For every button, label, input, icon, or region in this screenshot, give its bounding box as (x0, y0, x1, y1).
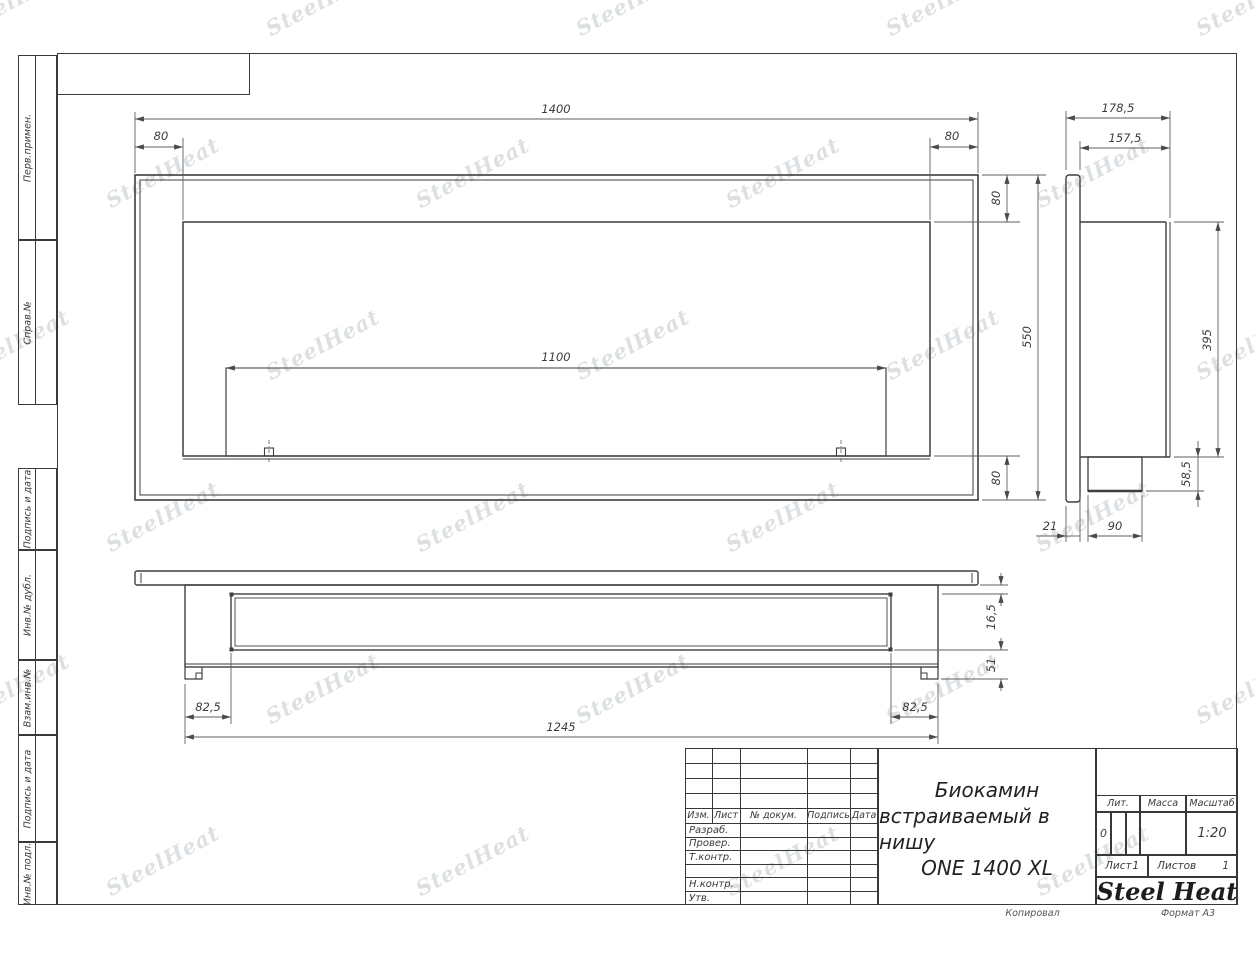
lit-label: Лит. (1096, 795, 1140, 812)
scale-label: Масштаб (1186, 795, 1238, 812)
sheet-cell: Лист 1 (1096, 855, 1148, 877)
row-developed: Разраб. (685, 823, 740, 837)
top-left-extra-box (57, 53, 250, 95)
drawing-sheet: SteelHeatSteelHeatSteelHeatSteelHeatStee… (0, 0, 1255, 970)
rev-col-list: Лист (712, 808, 740, 823)
scale-value-cell: 1:20 (1186, 812, 1238, 855)
sheets-label: Листов (1157, 860, 1196, 872)
lit-cell-2 (1111, 812, 1126, 855)
margin-label: Справ.№ (23, 301, 34, 344)
copied-label: Копировал (985, 908, 1080, 919)
sheets-cell: Листов 1 (1148, 855, 1238, 877)
margin-cell-sprav-no: Справ.№ (18, 240, 57, 405)
margin-cell-inv-podl: Инв.№ подл. (18, 842, 57, 905)
mass-label: Масса (1140, 795, 1186, 812)
lit-value-cell: 0 (1096, 812, 1111, 855)
margin-cell-podpis-data-2: Подпись и дата (18, 735, 57, 842)
lit-cell-3 (1126, 812, 1140, 855)
document-title-cell: Биокамин встраиваемый в нишу ONE 1400 XL (878, 748, 1096, 905)
row-checked: Провер. (685, 837, 740, 850)
sheet-label: Лист (1105, 860, 1132, 872)
margin-cell-podpis-data-1: Подпись и дата (18, 468, 57, 550)
logo-heat-text: Heat (1173, 877, 1238, 906)
sheet-value: 1 (1132, 860, 1139, 872)
mass-value-cell (1140, 812, 1186, 855)
rev-col-sign: Подпись (807, 808, 850, 823)
title-line-1: Биокамин (935, 777, 1039, 803)
sheets-value: 1 (1222, 860, 1229, 872)
margin-label: Перв.примен. (23, 113, 34, 181)
margin-label: Инв.№ подл. (23, 842, 34, 905)
margin-cell-vzam-inv: Взам.инв.№ (18, 660, 57, 735)
margin-label: Подпись и дата (23, 470, 34, 549)
margin-cell-perv-primen: Перв.примен. (18, 55, 57, 240)
brand-logo: Steel Heat (1096, 877, 1238, 905)
rev-col-date: Дата (850, 808, 878, 823)
margin-label: Подпись и дата (23, 749, 34, 828)
title-line-2: встраиваемый в нишу (879, 803, 1095, 855)
row-tcontrol: Т.контр. (685, 850, 740, 864)
margin-cell-inv-dubl: Инв.№ дубл. (18, 550, 57, 660)
rev-col-doc: № докум. (740, 808, 807, 823)
row-approved: Утв. (685, 891, 740, 905)
row-ncontrol: Н.контр. (685, 877, 740, 891)
rev-col-izm: Изм. (685, 808, 712, 823)
format-label: Формат А3 (1143, 908, 1233, 919)
title-line-3: ONE 1400 XL (921, 855, 1053, 881)
title-block: Изм. Лист № докум. Подпись Дата Разраб. … (685, 748, 1238, 905)
margin-label: Инв.№ дубл. (23, 574, 34, 636)
logo-steel-text: Steel (1097, 877, 1165, 906)
margin-label: Взам.инв.№ (23, 668, 34, 726)
